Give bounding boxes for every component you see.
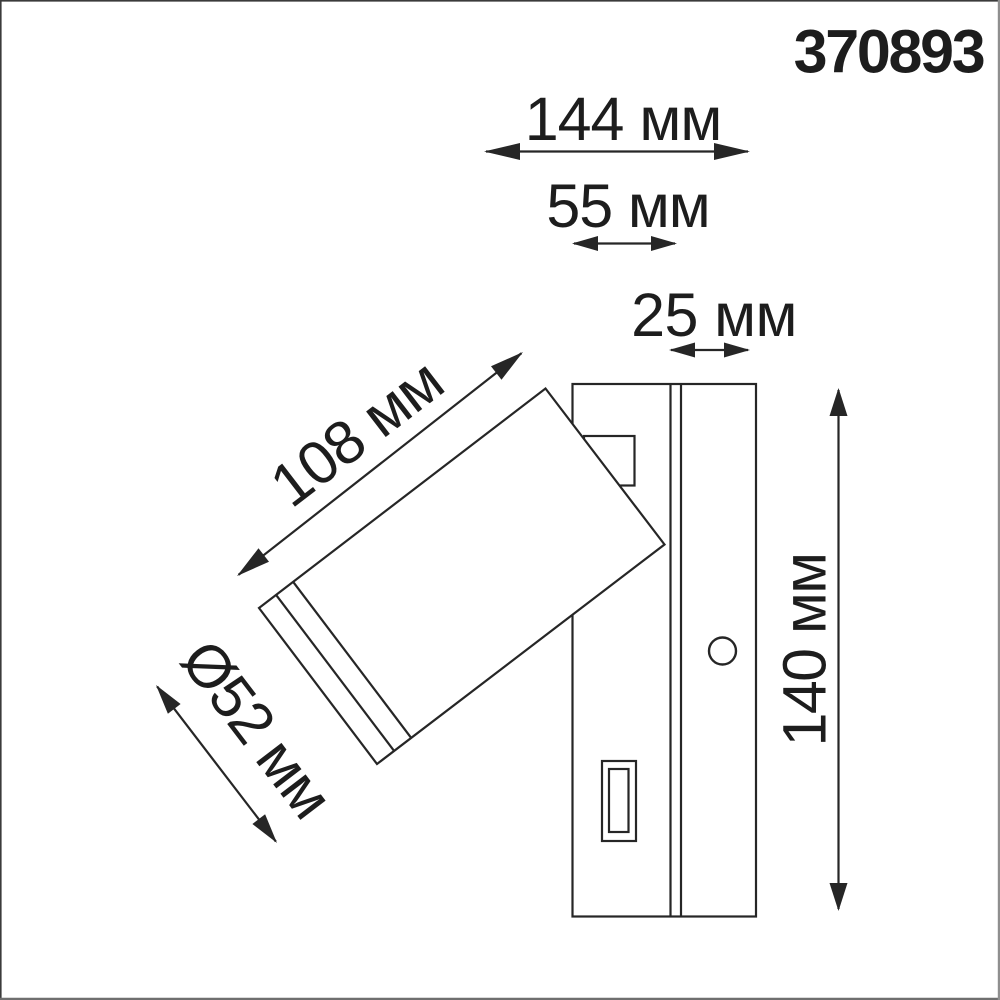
svg-text:140 мм: 140 мм: [771, 554, 839, 747]
svg-text:25 мм: 25 мм: [631, 281, 797, 349]
svg-text:370893: 370893: [794, 18, 984, 86]
svg-text:55 мм: 55 мм: [546, 172, 709, 240]
svg-text:144 мм: 144 мм: [525, 85, 722, 153]
